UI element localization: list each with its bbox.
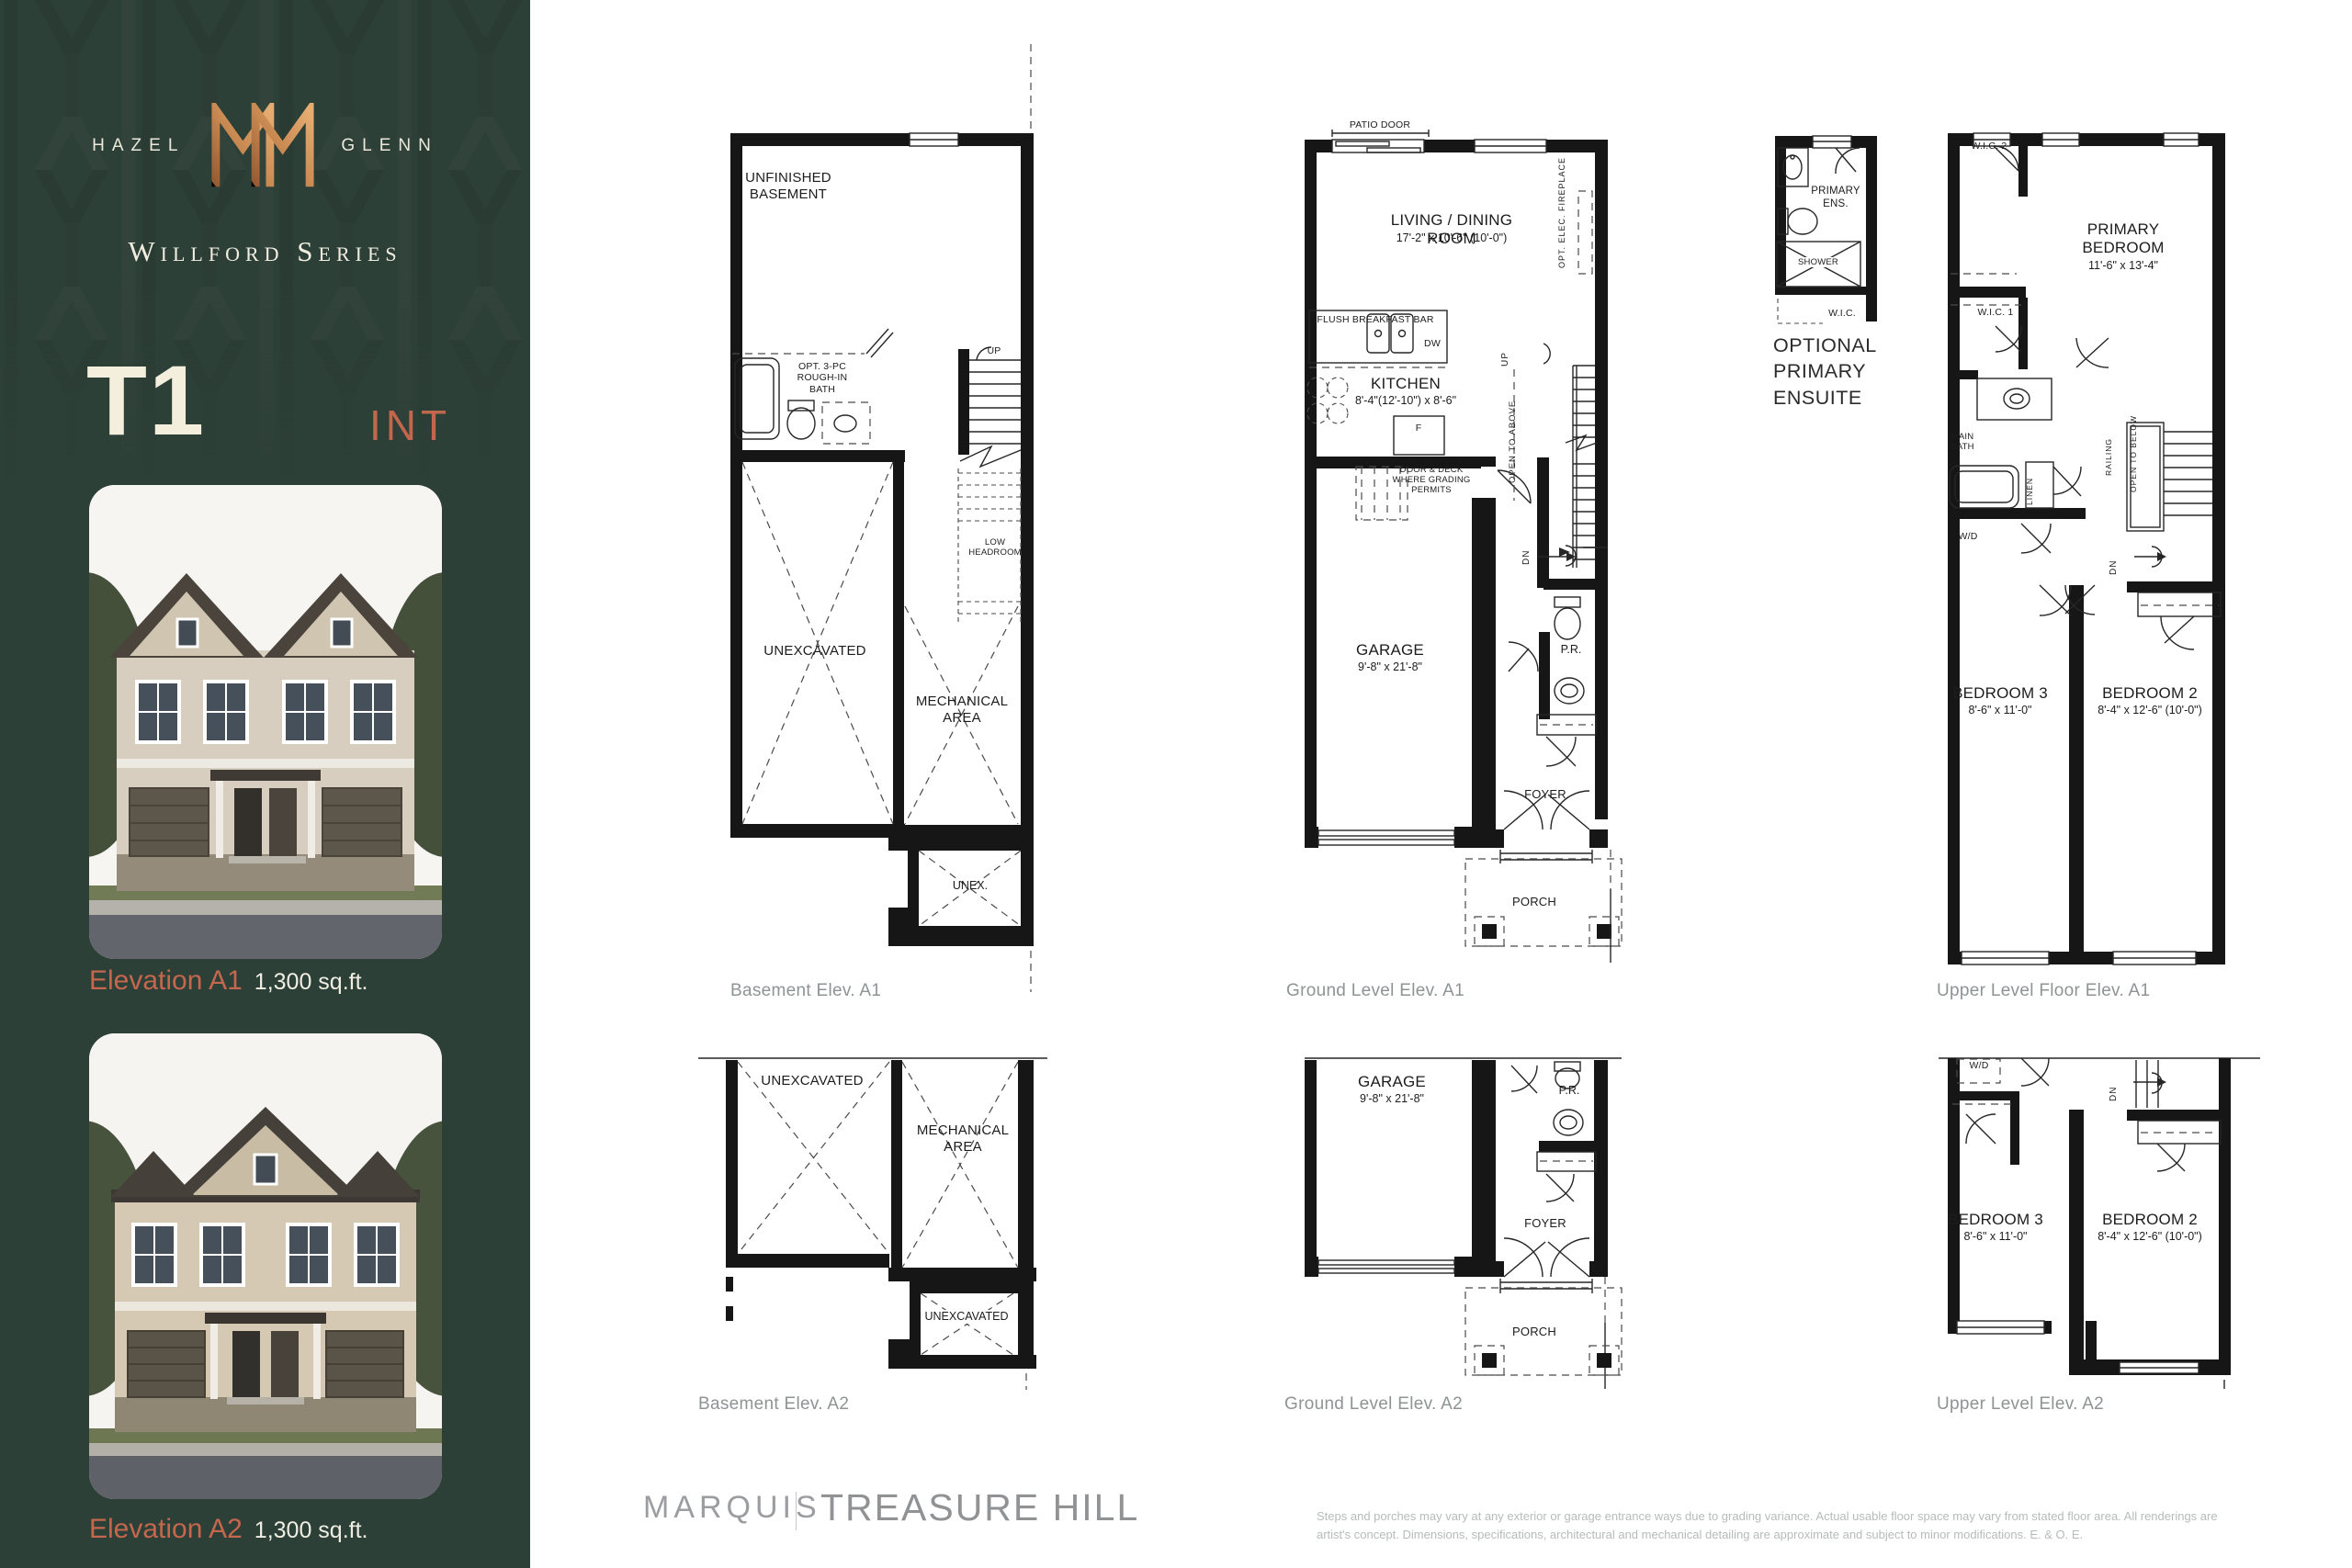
room-label-unex: UNEX. — [953, 879, 988, 893]
caption-upper-a1: Upper Level Floor Elev. A1 — [1937, 981, 2150, 1001]
room-label-main-bath: MAIN BATH — [1951, 432, 1973, 452]
basement-a2-linework — [698, 1056, 1047, 1392]
elevation-a1-label-row: Elevation A1 1,300 sq.ft. — [89, 965, 368, 997]
label-low-headroom: LOW HEADROOM — [968, 537, 1022, 558]
elevation-a2-label: Elevation A2 — [89, 1514, 243, 1545]
label-dn: DN — [2109, 560, 2119, 575]
label-garage-dims: 9'-8" x 21'-8" — [1360, 1092, 1424, 1106]
room-label-kitchen: KITCHEN — [1371, 375, 1441, 393]
stairs-icon — [1543, 344, 1597, 568]
label-breakfast-bar: FLUSH BREAKFAST BAR — [1317, 314, 1433, 325]
marquis-logo: MARQUIS — [643, 1490, 821, 1526]
label-primary-dims: 11'-6" x 13'-4" — [2088, 259, 2158, 273]
plan-basement-a2: UNEXCAVATED MECHANICAL AREA UNEXCAVATED — [698, 1056, 1047, 1392]
room-label-garage: GARAGE — [1356, 641, 1424, 660]
room-label-primary-bedroom: PRIMARY BEDROOM — [2082, 220, 2164, 257]
room-label-unexcavated: UNEXCAVATED — [763, 643, 865, 660]
label-dw: DW — [1424, 338, 1441, 349]
plan-upper-a2: W/D DN BEDROOM 3 8'-6" x 11'-0" BEDROOM … — [1939, 1056, 2260, 1392]
label-open-to-above: OPEN TO ABOVE — [1508, 400, 1518, 483]
model-tag: INT — [369, 404, 451, 446]
room-label-foyer: FOYER — [1524, 787, 1566, 801]
room-label-mechanical: MECHANICAL AREA — [916, 694, 1008, 726]
logo-divider — [796, 1492, 797, 1530]
label-dn: DN — [2109, 1087, 2119, 1101]
room-label-shower: SHOWER — [1798, 257, 1838, 267]
room-label-unexcavated: UNEXCAVATED — [761, 1073, 863, 1089]
elevation-a1-art — [89, 485, 442, 959]
room-label-mechanical: MECHANICAL AREA — [917, 1122, 1009, 1155]
label-bedroom3-dims: 8'-6" x 11'-0" — [1968, 704, 2031, 717]
room-label-primary-ens: PRIMARY ENS. — [1811, 186, 1860, 210]
elevation-a2-art — [89, 1033, 442, 1499]
series-title: Willford Series — [0, 235, 530, 268]
ensuite-linework — [1775, 129, 1881, 335]
room-label-porch: PORCH — [1512, 895, 1556, 908]
label-up: UP — [1500, 352, 1510, 367]
caption-ensuite: OPTIONAL PRIMARY ENSUITE — [1773, 333, 1877, 411]
plan-ensuite: PRIMARY ENS. SHOWER W.I.C. — [1775, 129, 1881, 335]
room-label-foyer: FOYER — [1524, 1216, 1566, 1230]
room-label-pr: P.R. — [1559, 1084, 1580, 1098]
label-railing: RAILING — [2104, 438, 2113, 476]
room-label-bedroom3: BEDROOM 3 — [1948, 1211, 2043, 1229]
room-label-wic1: W.I.C. 1 — [1978, 307, 2014, 318]
label-fridge: F — [1416, 423, 1422, 434]
brand-hazel: HAZEL — [92, 136, 185, 156]
room-label-wic: W.I.C. — [1828, 308, 1856, 319]
ground-a2-linework — [1305, 1056, 1626, 1392]
caption-ground-a2: Ground Level Elev. A2 — [1284, 1394, 1463, 1415]
label-door-deck: DOOR & DECK WHERE GRADING PERMITS — [1393, 465, 1471, 496]
elevation-a1-area: 1,300 sq.ft. — [254, 969, 368, 996]
elevation-a2-rendering — [89, 1033, 442, 1499]
label-dn: DN — [1521, 550, 1532, 565]
caption-ground-a1: Ground Level Elev. A1 — [1286, 981, 1464, 1001]
label-wd: W/D — [1958, 531, 1977, 542]
label-linen: LINEN — [2025, 478, 2034, 505]
room-label-bedroom2: BEDROOM 2 — [2102, 684, 2198, 703]
room-label-wic2: W.I.C. 2 — [1972, 141, 2007, 152]
elevation-a1-rendering — [89, 485, 442, 959]
brand-glenn: GLENN — [341, 136, 437, 156]
room-label-garage: GARAGE — [1358, 1073, 1426, 1091]
room-label-bedroom3: BEDROOM 3 — [1952, 684, 2048, 703]
room-label-pr: P.R. — [1561, 643, 1582, 657]
plan-ground-a2: GARAGE 9'-8" x 21'-8" P.R. FOYER PORCH — [1305, 1056, 1626, 1392]
plan-ground-a1: PATIO DOOR LIVING / DINING ROOM 17'-2" x… — [1305, 119, 1626, 1001]
label-patio-door: PATIO DOOR — [1350, 119, 1410, 130]
label-up: UP — [988, 345, 1001, 356]
room-label-unexcavated2: UNEXCAVATED — [925, 1310, 1009, 1324]
label-fireplace: OPT. ELEC. FIREPLACE — [1557, 157, 1566, 268]
label-open-to-below: OPEN TO BELOW — [2129, 415, 2138, 492]
elevation-a2-label-row: Elevation A2 1,300 sq.ft. — [89, 1514, 368, 1545]
model-name: T1 — [86, 351, 206, 450]
treasure-hill-logo: TREASURE HILL — [820, 1486, 1139, 1529]
label-bedroom3-dims: 8'-6" x 11'-0" — [1963, 1230, 2027, 1244]
brochure-page: HAZEL GLENN Willford Series T1 INT — [0, 0, 2352, 1568]
ground-a1-linework — [1305, 119, 1626, 1001]
caption-upper-a2: Upper Level Elev. A2 — [1937, 1394, 2104, 1415]
disclaimer-text: Steps and porches may vary at any exteri… — [1317, 1507, 2279, 1543]
label-bedroom2-dims: 8'-4" x 12'-6" (10'-0") — [2098, 704, 2202, 717]
room-label-unfinished-basement: UNFINISHED BASEMENT — [745, 170, 831, 202]
label-bedroom2-dims: 8'-4" x 12'-6" (10'-0") — [2098, 1230, 2202, 1244]
room-label-porch: PORCH — [1512, 1325, 1556, 1338]
sidebar: HAZEL GLENN Willford Series T1 INT — [0, 0, 530, 1568]
hazel-glenn-monogram-icon — [209, 103, 317, 189]
label-kitchen-dims: 8'-4"(12'-10") x 8'-6" — [1355, 394, 1456, 408]
label-garage-dims: 9'-8" x 21'-8" — [1358, 660, 1422, 674]
room-label-opt-bath: OPT. 3-PC ROUGH-IN BATH — [797, 361, 848, 395]
elevation-a1-label: Elevation A1 — [89, 965, 243, 997]
room-label-bedroom2: BEDROOM 2 — [2102, 1211, 2198, 1229]
caption-basement-a2: Basement Elev. A2 — [698, 1394, 849, 1415]
elevation-a2-area: 1,300 sq.ft. — [254, 1517, 368, 1544]
label-wd: W/D — [1969, 1060, 1988, 1071]
plan-basement-a1: UNFINISHED BASEMENT OPT. 3-PC ROUGH-IN B… — [730, 37, 1047, 997]
label-living-dims: 17'-2" x 10'-6" (10'-0") — [1396, 231, 1508, 245]
brand-lockup: HAZEL GLENN — [0, 103, 530, 189]
caption-basement-a1: Basement Elev. A1 — [730, 981, 881, 1001]
plan-upper-a1: W.I.C. 2 PRIMARY BEDROOM 11'-6" x 13'-4"… — [1948, 129, 2260, 1001]
